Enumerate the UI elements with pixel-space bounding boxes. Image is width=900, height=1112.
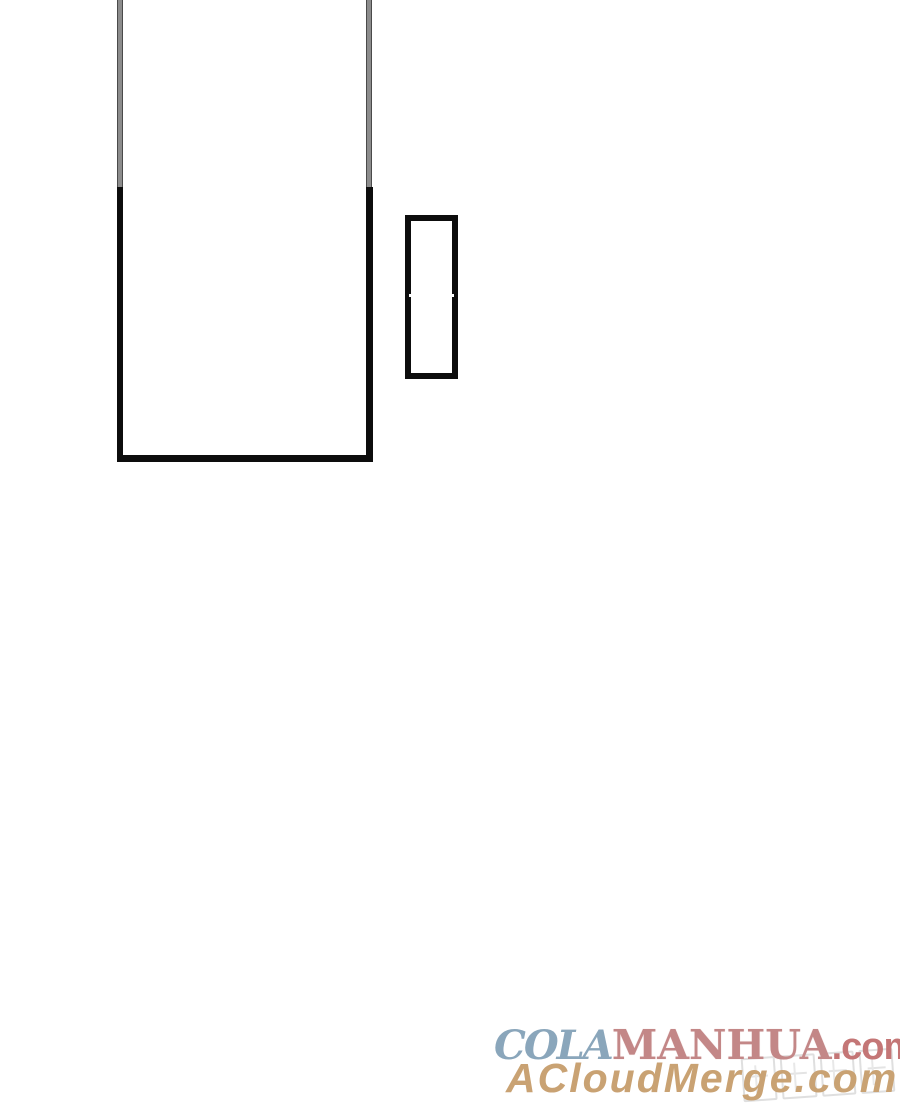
- watermark-acloudmerge-text: ACloudMerge.com: [506, 1056, 898, 1100]
- main-panel-right-border: [366, 187, 373, 462]
- side-panel-border-joint: [452, 294, 454, 297]
- main-panel-bottom-border: [117, 455, 373, 462]
- main-panel-right-border-faded: [366, 0, 372, 189]
- side-panel: [405, 215, 458, 379]
- side-panel-border-joint: [409, 294, 411, 297]
- main-panel-left-border: [117, 187, 123, 462]
- comic-page: COLA MANHUA .com ACloudMerge.com: [0, 0, 900, 1112]
- main-panel-left-border-faded: [117, 0, 123, 189]
